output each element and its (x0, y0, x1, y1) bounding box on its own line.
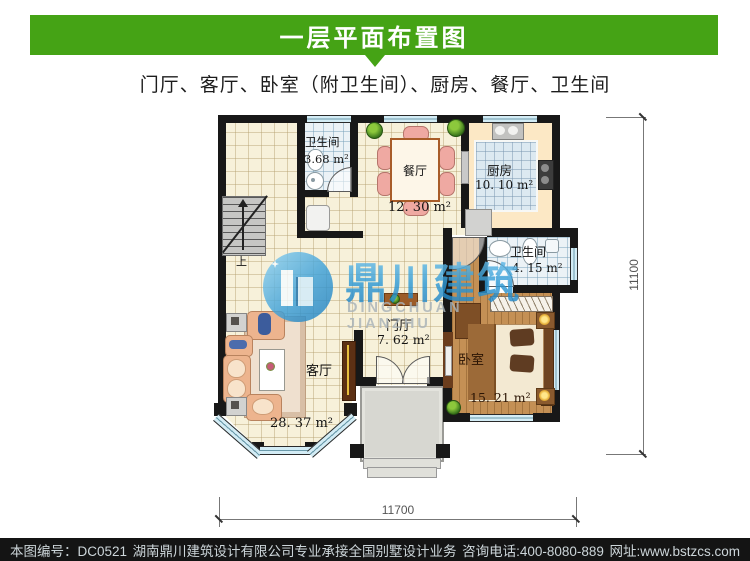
dim-label-width: 11700 (219, 503, 577, 517)
floor-plan: 上 餐厅 (0, 0, 750, 561)
wall (297, 123, 305, 238)
porch-step (367, 467, 437, 478)
wall (533, 413, 560, 422)
area-label-dining: 12. 30 m² (388, 200, 451, 215)
window (470, 414, 533, 422)
room-label-bathroom-1: 卫生间 (305, 134, 340, 150)
porch-pillar (350, 444, 364, 458)
sofa-cushion (227, 379, 246, 398)
washing-machine-icon (306, 205, 330, 231)
room-label-dining: 餐厅 (403, 162, 427, 179)
sofa-cushion (227, 359, 246, 378)
porch-pillar (436, 444, 450, 458)
room-label-bedroom: 卧室 (458, 349, 484, 368)
sink-basin-icon (495, 126, 505, 135)
burner-icon (541, 164, 549, 172)
area-label-bathroom-1: 3.68 m² (304, 152, 349, 166)
pillow-icon (509, 354, 534, 373)
side-table-lamp-icon (231, 317, 239, 325)
dim-extension-line (606, 454, 646, 455)
dim-line-right (643, 117, 644, 455)
wall (487, 228, 578, 237)
window (483, 115, 537, 123)
area-label-living: 28. 37 m² (270, 416, 333, 431)
tv-screen-line (347, 345, 349, 395)
bath-fixture-icon (545, 239, 559, 253)
kitchen-doorway (461, 151, 469, 184)
entry-porch (360, 386, 444, 462)
logo-building-icon (296, 277, 313, 306)
table-flowers-icon (266, 362, 275, 371)
sofa-cushion (252, 398, 274, 415)
wall (297, 231, 363, 238)
plant-icon (446, 400, 461, 415)
company-slogan: 湖南鼎川建筑设计有限公司专业承接全国别墅设计业务 (133, 540, 457, 560)
watermark: 鼎川建筑 DINGCHUAN JIANZHU (263, 250, 543, 326)
burner-icon (541, 176, 549, 184)
basin-icon (306, 172, 324, 190)
dining-chair (439, 172, 455, 196)
watermark-name-en: DINGCHUAN JIANZHU (347, 300, 543, 332)
wall (297, 190, 329, 197)
living-tv-cabinet (342, 341, 356, 401)
bay-window (260, 446, 312, 455)
person-icon (229, 340, 247, 349)
window (307, 115, 351, 123)
lamp-icon (539, 390, 550, 401)
website-url: 网址:www.bstzcs.com (609, 540, 740, 560)
dining-chair (439, 146, 455, 170)
area-label-kitchen: 10. 10 m² (475, 178, 533, 192)
area-label-bedroom: 15. 21 m² (470, 390, 531, 405)
window (384, 115, 437, 123)
dim-label-height: 11100 (627, 252, 641, 298)
dim-line-bottom (219, 519, 577, 520)
stairs-up-label: 上 (236, 253, 247, 269)
dim-extension-line (606, 117, 646, 118)
fridge-icon (465, 209, 492, 236)
plant-icon (366, 122, 383, 139)
plant-icon (447, 119, 465, 137)
side-table-lamp-icon (231, 401, 239, 409)
room-label-living: 客厅 (306, 360, 332, 379)
window (570, 248, 578, 280)
stair-arrow-head-icon (238, 199, 248, 207)
dining-table: 餐厅 (390, 138, 440, 202)
sheet-number: 本图编号：DC0521 (10, 540, 127, 560)
wall (570, 237, 578, 248)
contact-phone: 咨询电话:400-8080-889 (462, 540, 604, 560)
area-label-foyer: 7. 62 m² (377, 332, 430, 347)
tv-icon (445, 346, 452, 376)
basin-drain-icon (311, 178, 315, 182)
footer-bar: 本图编号：DC0521 湖南鼎川建筑设计有限公司专业承接全国别墅设计业务 咨询电… (0, 538, 750, 561)
sink-basin-icon (508, 126, 518, 135)
stair-direction-arrow (242, 206, 244, 250)
room-label-kitchen: 厨房 (487, 160, 512, 179)
logo-building-icon (281, 270, 293, 306)
